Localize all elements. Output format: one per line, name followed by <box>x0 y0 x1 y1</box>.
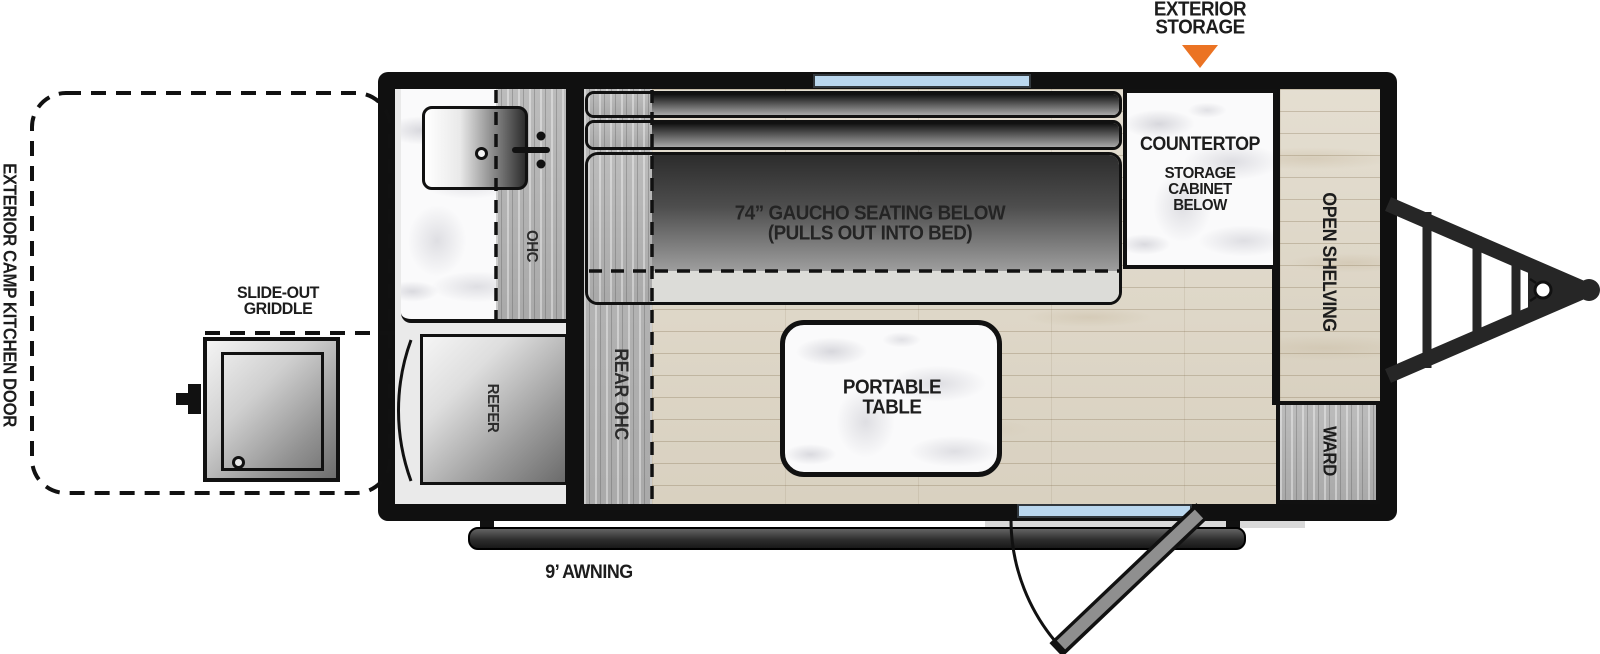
awning-label: 9’ AWNING <box>545 562 632 584</box>
storage-cabinet-below-label: BELOW <box>1173 197 1227 215</box>
floorplan-canvas: EXTERIOR STORAGE SLIDE-OUT GRIDDLE EXTER… <box>0 0 1600 654</box>
gaucho-seating-label: (PULLS OUT INTO BED) <box>768 223 972 246</box>
griddle-burner-knob <box>232 456 245 469</box>
ohc-label: OHC <box>522 230 540 262</box>
exterior-camp-kitchen-door-label: EXTERIOR CAMP KITCHEN DOOR <box>0 163 20 427</box>
slide-out-griddle-label: GRIDDLE <box>244 299 313 319</box>
countertop-label: COUNTERTOP <box>1140 134 1260 156</box>
exterior-storage-label: STORAGE <box>1155 17 1244 40</box>
refrigerator-label: REFER <box>483 384 501 433</box>
window-top <box>813 74 1031 88</box>
hitch-jack-icon <box>1535 282 1551 298</box>
griddle-connector <box>176 384 201 414</box>
entry-door-window <box>1017 504 1192 518</box>
wardrobe-label: WARD <box>1319 426 1340 476</box>
griddle-surface <box>221 352 324 471</box>
rear-ohc-label: REAR OHC <box>609 348 631 440</box>
exterior-storage-arrow-icon <box>1182 45 1218 68</box>
slide-out-griddle <box>203 337 340 482</box>
open-shelving-label: OPEN SHELVING <box>1317 192 1339 331</box>
awning-roller <box>468 527 1246 550</box>
trailer-tongue-hitch <box>1388 204 1600 376</box>
portable-table-label: TABLE <box>863 397 922 420</box>
